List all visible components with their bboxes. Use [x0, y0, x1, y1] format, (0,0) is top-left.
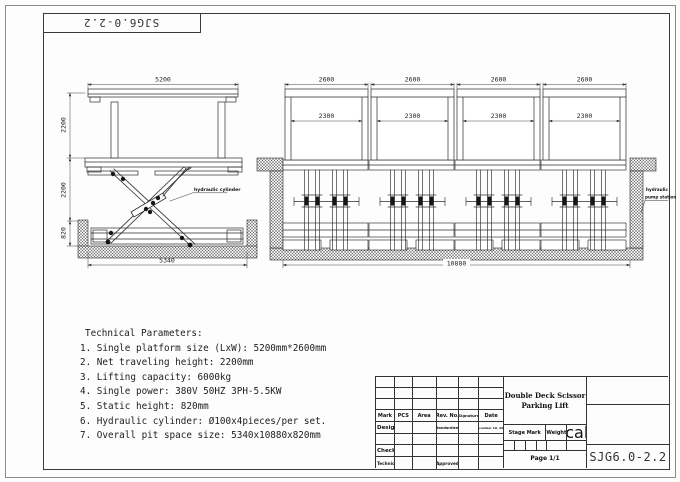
- approved-label: Approved: [437, 457, 460, 469]
- tech-param-item: 5. Static height: 820mm: [80, 400, 380, 415]
- title-block-empty-cell: [587, 377, 669, 405]
- pump-label-line1: hydraulic: [646, 187, 668, 192]
- hydraulic-cylinder-label: hydraulic cylinder: [170, 187, 241, 201]
- design-row: Design Standardized December 10, 2008: [376, 422, 503, 434]
- bay-1: 2600 2300: [283, 76, 368, 251]
- side-view-top-platform: [88, 89, 238, 158]
- dim-2300: 2300: [491, 112, 507, 120]
- tech-param-item: 1. Single platform size (LxW): 5200mm*26…: [80, 342, 380, 357]
- drawing-code: SJG6.0-2.2: [587, 445, 669, 468]
- check-row: Check: [376, 445, 503, 457]
- dim-5340: 5340: [159, 257, 175, 265]
- front-view: 2600 2300: [257, 76, 676, 269]
- dim-2300: 2300: [577, 112, 593, 120]
- bay-3: 2600 2300: [455, 76, 540, 251]
- col-header-signature: Signature: [459, 410, 479, 421]
- tech-params-heading: Technical Parameters:: [80, 327, 380, 342]
- col-header-area: Area: [413, 410, 437, 421]
- hydraulic-pump-station-label: hydraulic pump station: [641, 187, 676, 213]
- col-header-pcs: PCS: [395, 410, 413, 421]
- date-value: December 10, 2008: [479, 422, 503, 433]
- dim-5200: 5200: [155, 76, 171, 84]
- front-view-bays: 2600 2300: [283, 76, 626, 251]
- tech-param-item: 2. Net traveling height: 2200mm: [80, 356, 380, 371]
- stage-mark-row: Stage Mark Weight Scale: [504, 425, 586, 441]
- col-header-rev-no: Rev. No.: [437, 410, 460, 421]
- dim-2200-upper: 2200: [60, 117, 68, 133]
- tech-param-item: 7. Overall pit space size: 5340x10880x82…: [80, 429, 380, 444]
- technical-label: Technical: [376, 457, 395, 469]
- tech-param-item: 3. Lifting capacity: 6000kg: [80, 371, 380, 386]
- side-view-base-frame: [91, 228, 243, 244]
- stage-mark-label: Stage Mark: [504, 425, 546, 440]
- product-title: Double Deck Scissor Parking Lift: [504, 377, 586, 425]
- dim-2600: 2600: [405, 76, 421, 84]
- stage-mark-cells-row: [504, 441, 586, 451]
- check-label: Check: [376, 445, 395, 456]
- side-view-second-deck: [85, 158, 242, 175]
- title-block-empty-cell: [587, 405, 669, 445]
- revision-header-row: Mark PCS Area Rev. No. Signature Date: [376, 410, 503, 422]
- col-header-mark: Mark: [376, 410, 395, 421]
- page-indicator: Page 1/1: [504, 451, 586, 466]
- technical-parameters: Technical Parameters: 1. Single platform…: [80, 327, 380, 444]
- dim-2300: 2300: [405, 112, 421, 120]
- drawing-sheet: SJG6.0-2.2: [0, 0, 680, 482]
- title-block-right: SJG6.0-2.2: [587, 377, 669, 468]
- product-title-line2: Parking Lift: [521, 401, 568, 411]
- title-block-revision-table: Mark PCS Area Rev. No. Signature Date De…: [376, 377, 504, 468]
- hydraulic-cylinder-text: hydraulic cylinder: [194, 187, 241, 193]
- bay-4: 2600 2300: [541, 76, 626, 251]
- standardized-label: Standardized: [437, 422, 460, 433]
- dim-2200-lower: 2200: [60, 182, 68, 198]
- tech-param-item: 4. Single power: 380V 50HZ 3PH-5.5KW: [80, 385, 380, 400]
- dim-2600: 2600: [319, 76, 335, 84]
- dim-2300: 2300: [319, 112, 335, 120]
- weight-label: Weight: [546, 425, 567, 440]
- technical-row: Technical Approved: [376, 457, 503, 469]
- dim-2600: 2600: [491, 76, 507, 84]
- bay-2: 2600 2300: [369, 76, 454, 251]
- title-block: Mark PCS Area Rev. No. Signature Date De…: [375, 376, 668, 468]
- tech-param-item: 6. Hydraulic cylinder: Ø100x4pieces/per …: [80, 415, 380, 430]
- side-view: hydraulic cylinder 5200 2200 2200 820 53…: [60, 76, 258, 269]
- scale-label: Scale: [567, 425, 586, 440]
- design-label: Design: [376, 422, 395, 433]
- product-title-line1: Double Deck Scissor: [505, 391, 586, 401]
- pump-label-line2: pump station: [645, 195, 676, 200]
- dim-820: 820: [60, 227, 68, 239]
- title-block-middle: Double Deck Scissor Parking Lift Stage M…: [504, 377, 587, 468]
- col-header-date: Date: [479, 410, 503, 421]
- dim-10880: 10880: [447, 260, 467, 268]
- dim-2600: 2600: [577, 76, 593, 84]
